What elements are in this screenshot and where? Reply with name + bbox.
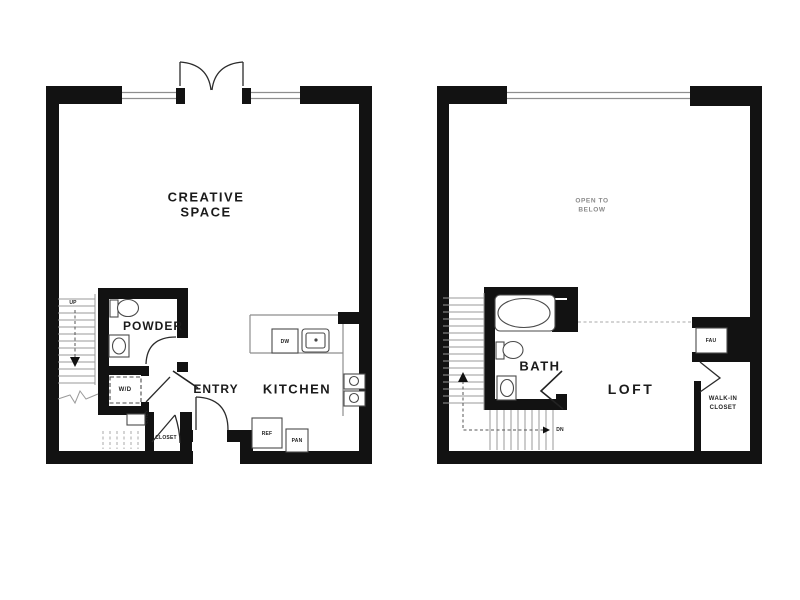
walkin-closet-label-1: WALK-IN [709, 396, 737, 402]
refrigerator-label: REF [262, 431, 273, 437]
dishwasher-label: DW [281, 339, 290, 345]
exterior-walls [46, 86, 372, 464]
stair-break-line [58, 391, 98, 403]
toilet-tank [110, 300, 118, 317]
bath-label: BATH [519, 359, 560, 374]
stair-direction-arrow [458, 372, 468, 382]
loft-floor-plan: OPEN TO BELOW BATH LOFT FAU WALK-IN CLOS… [437, 86, 762, 464]
bathtub-basin [498, 299, 550, 328]
french-doors [180, 62, 243, 90]
linen-label: LINEN [144, 410, 149, 423]
shelf-nook [127, 414, 145, 425]
loft-label: LOFT [608, 381, 655, 397]
stairs-down-label: DN [556, 427, 564, 433]
powder-door-arc [146, 337, 176, 364]
washer-dryer-label: W/D [119, 387, 132, 393]
fau-label: FAU [706, 338, 717, 344]
walkin-closet-door [700, 362, 720, 392]
floorplan-page: CREATIVE SPACE POWDER ENTRY KITCHEN W/D … [0, 0, 800, 600]
sink-drain [314, 338, 317, 341]
open-to-below-label-2: BELOW [578, 207, 605, 214]
powder-sink-basin [113, 338, 126, 354]
stairs-up-label: UP [69, 300, 77, 306]
creative-space-label-1: CREATIVE [168, 190, 245, 205]
burner [350, 394, 359, 403]
pantry-label: PAN [292, 438, 303, 444]
powder-label: POWDER [123, 319, 183, 333]
toilet-bowl [118, 300, 139, 317]
entry-closet-walls [145, 412, 192, 452]
first-floor-plan: CREATIVE SPACE POWDER ENTRY KITCHEN W/D … [46, 62, 372, 464]
walkin-closet-label-2: CLOSET [710, 405, 737, 411]
bath-sink-basin [501, 380, 514, 397]
creative-space-label-2: SPACE [180, 205, 231, 220]
entry-door-arc [196, 397, 228, 430]
toilet-bowl [503, 342, 523, 359]
open-to-below-label-1: OPEN TO [575, 198, 608, 205]
entry-label: ENTRY [193, 382, 238, 396]
burner [350, 377, 359, 386]
floorplan-drawing: CREATIVE SPACE POWDER ENTRY KITCHEN W/D … [0, 0, 800, 600]
kitchen-label: KITCHEN [263, 382, 331, 397]
wd-door-leaf [146, 377, 170, 402]
closet-label: CLOSET [155, 435, 176, 441]
window-lines [122, 93, 300, 99]
